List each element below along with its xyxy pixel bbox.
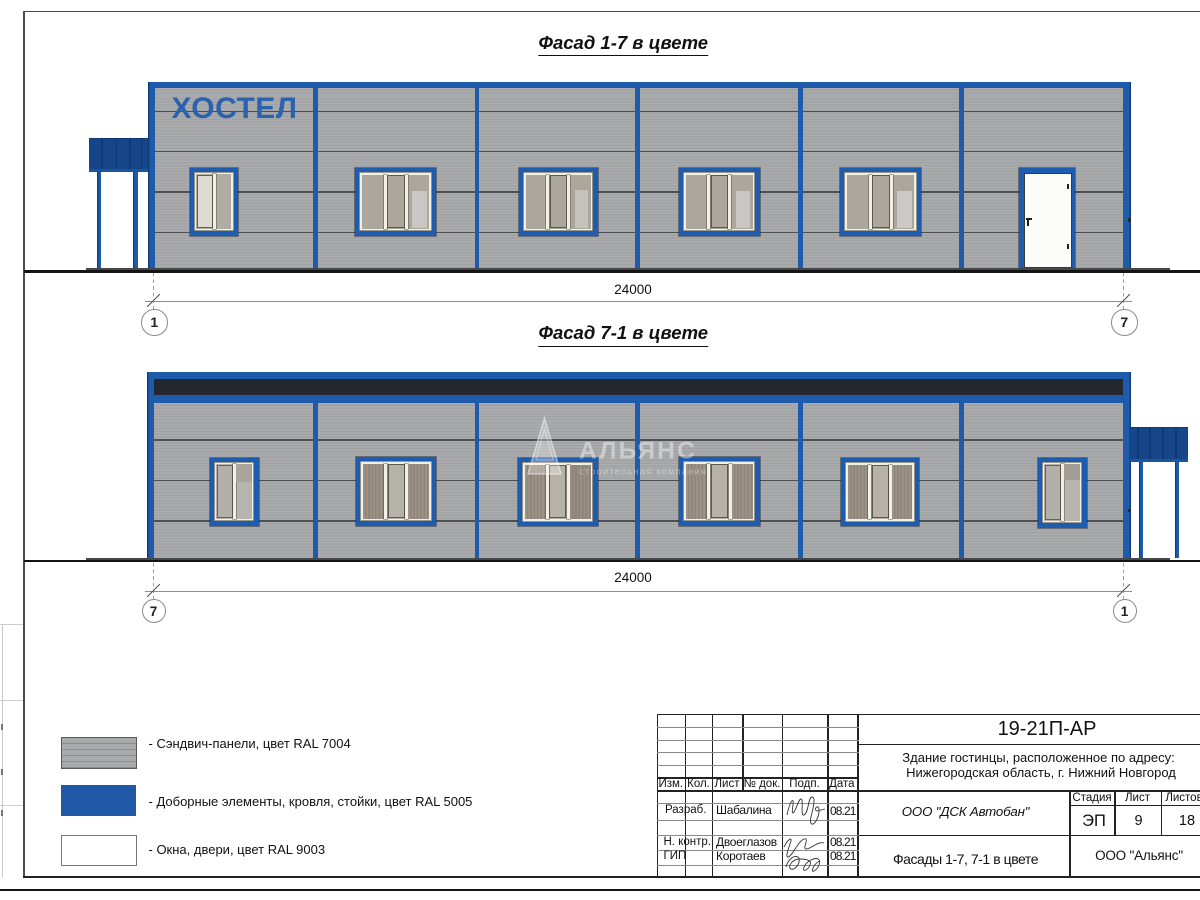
- svg-text:строительная компания: строительная компания: [579, 467, 707, 477]
- svg-text:АЛЬЯНС: АЛЬЯНС: [579, 438, 697, 465]
